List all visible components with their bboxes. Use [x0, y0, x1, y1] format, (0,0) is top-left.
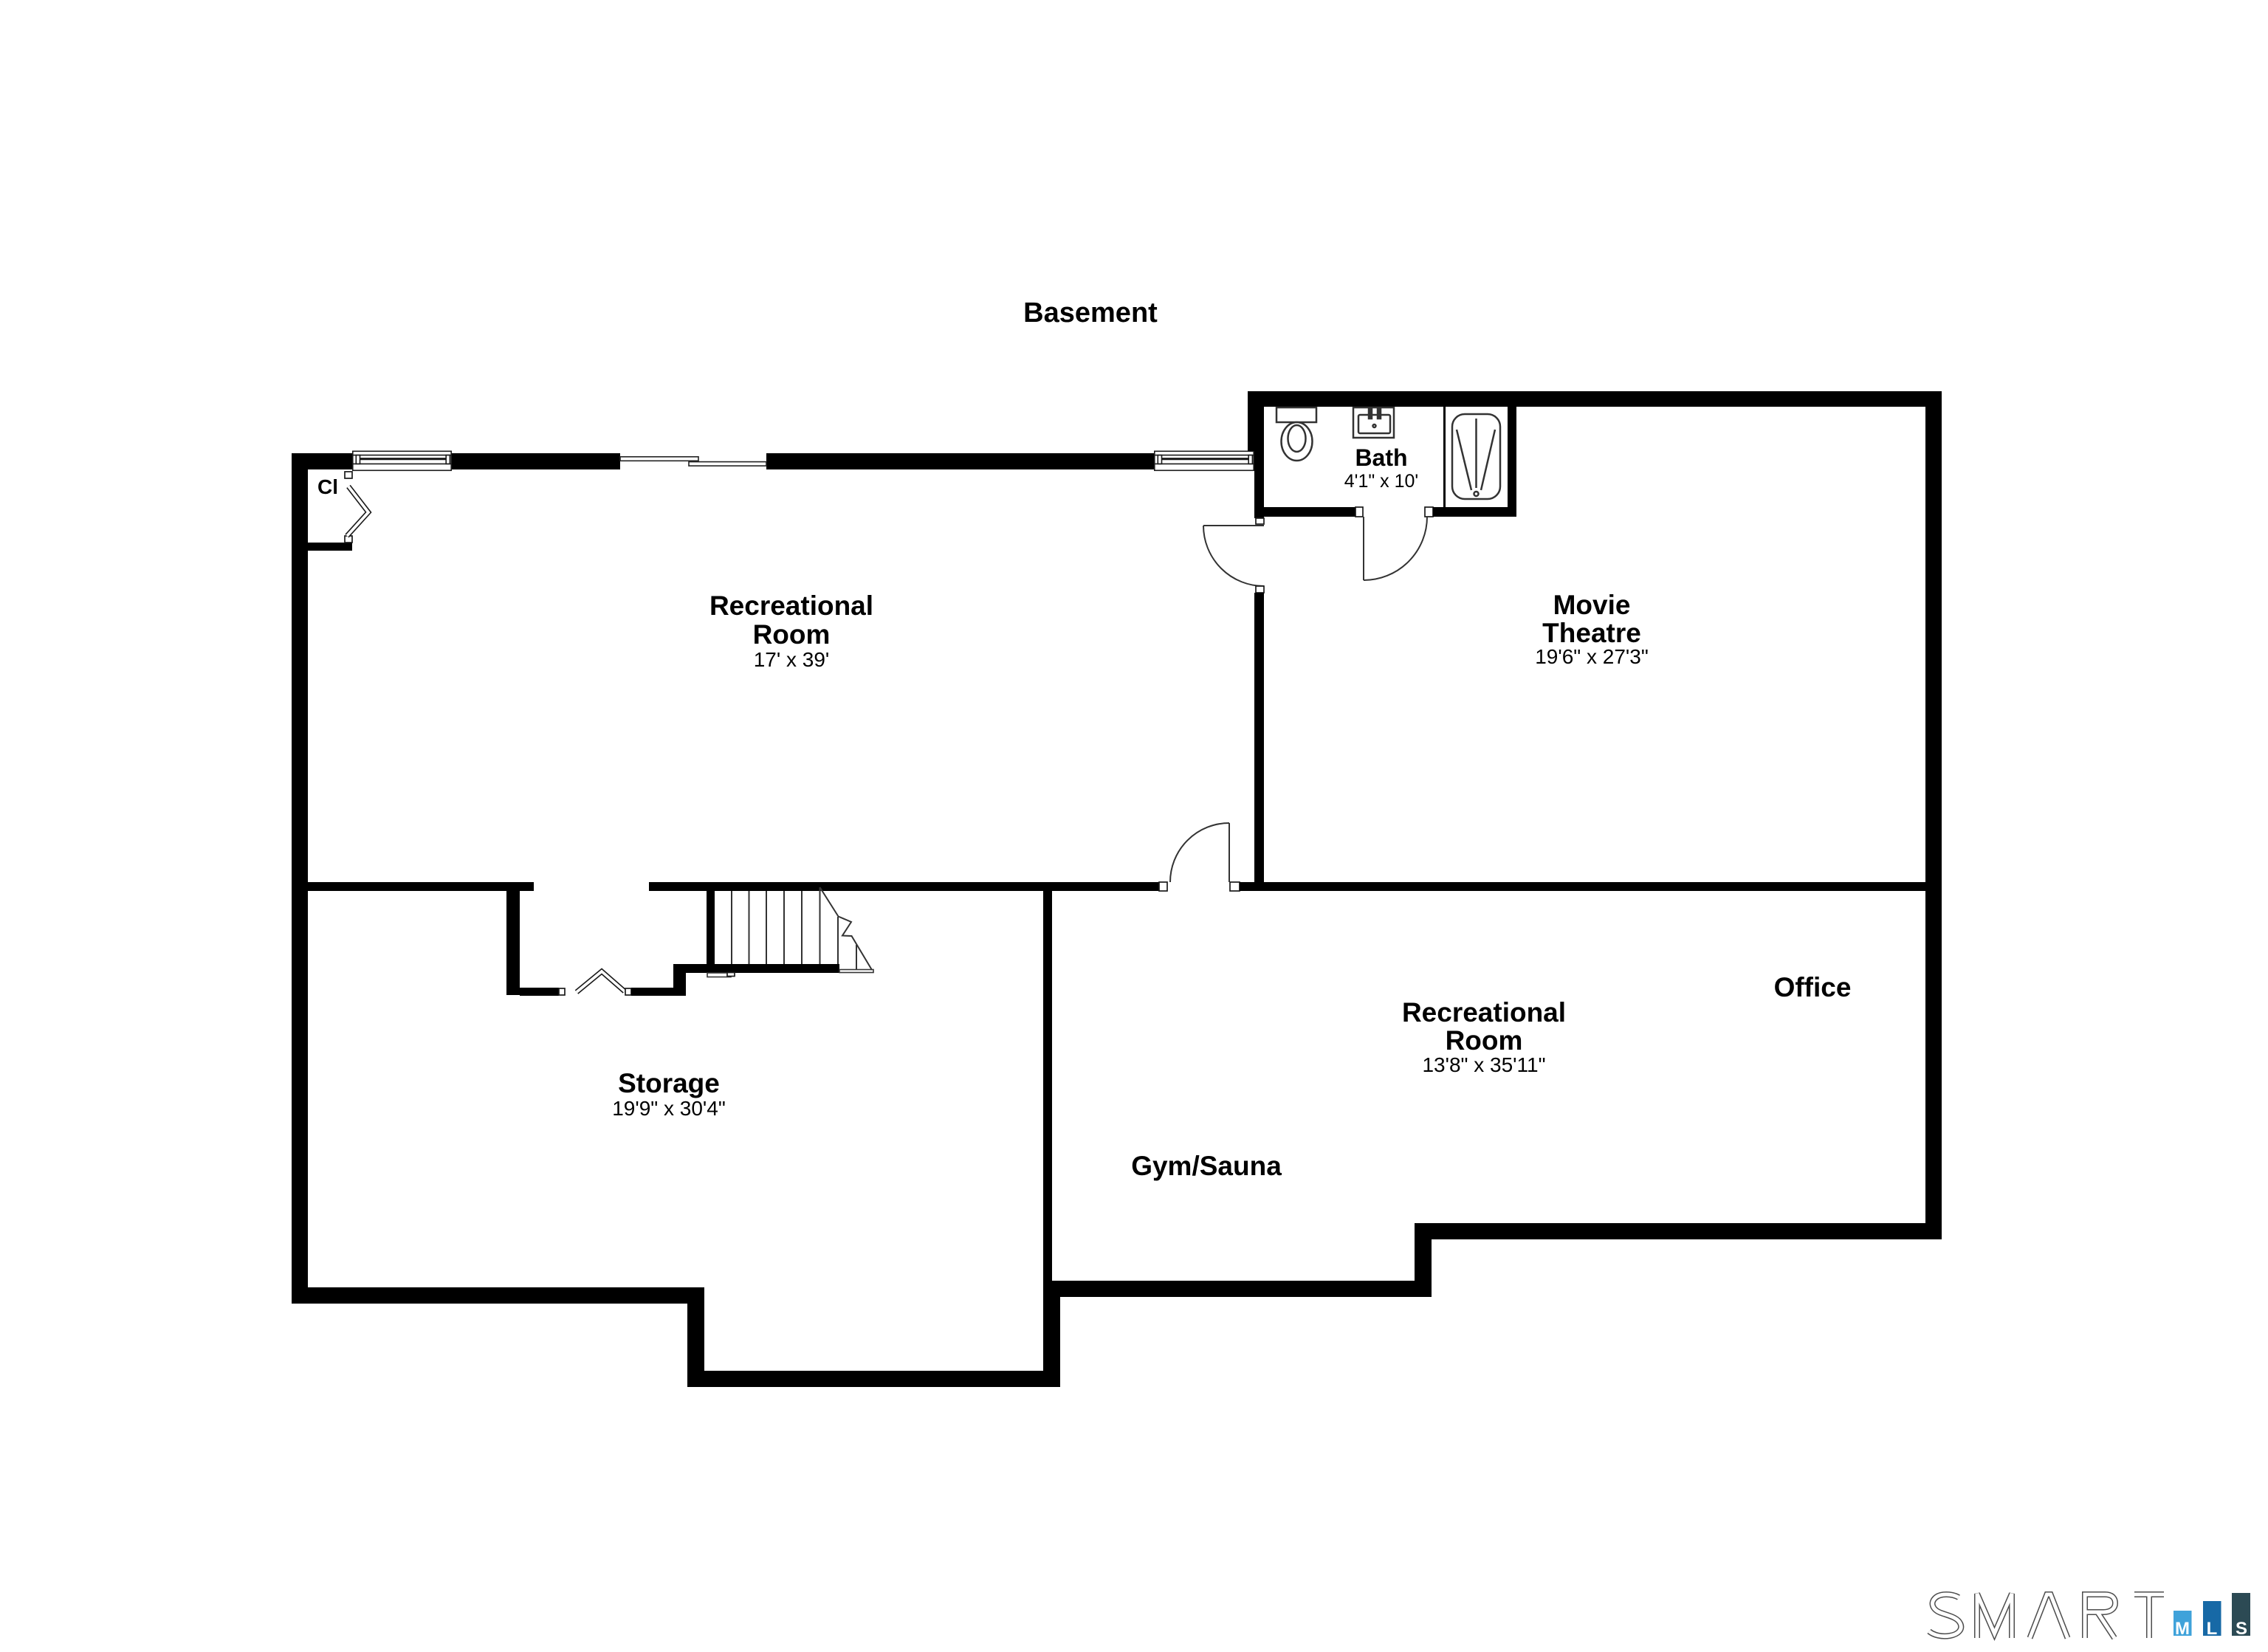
svg-text:13'8" x 35'11": 13'8" x 35'11" — [1422, 1053, 1545, 1076]
svg-text:L: L — [2207, 1619, 2218, 1639]
svg-text:Basement: Basement — [1023, 297, 1158, 328]
svg-text:Office: Office — [1774, 972, 1852, 1002]
svg-text:17' x 39': 17' x 39' — [754, 648, 830, 671]
svg-text:Recreational: Recreational — [709, 591, 873, 621]
svg-text:Movie: Movie — [1553, 590, 1631, 620]
svg-text:Room: Room — [1446, 1025, 1523, 1056]
svg-text:S: S — [2236, 1619, 2247, 1639]
svg-text:19'9" x 30'4": 19'9" x 30'4" — [612, 1097, 726, 1120]
svg-text:M: M — [2175, 1619, 2190, 1639]
svg-text:Theatre: Theatre — [1542, 618, 1641, 648]
svg-text:Gym/Sauna: Gym/Sauna — [1131, 1151, 1282, 1181]
svg-text:Recreational: Recreational — [1402, 997, 1566, 1028]
svg-text:4'1" x 10': 4'1" x 10' — [1344, 471, 1418, 492]
svg-text:Room: Room — [753, 619, 831, 650]
svg-text:19'6" x 27'3": 19'6" x 27'3" — [1535, 645, 1649, 668]
svg-text:Cl: Cl — [317, 475, 338, 498]
svg-text:Storage: Storage — [618, 1068, 720, 1098]
svg-text:Bath: Bath — [1355, 444, 1407, 471]
